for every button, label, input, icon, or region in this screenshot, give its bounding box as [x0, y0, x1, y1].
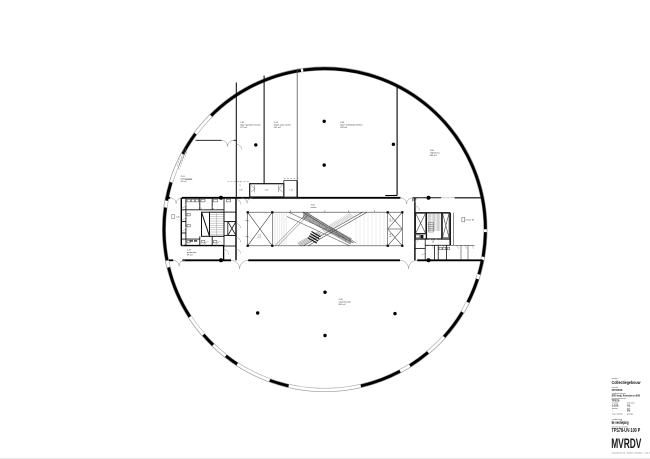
- svg-text:MVRDV: MVRDV: [611, 436, 642, 452]
- svg-text:131 m2: 131 m2: [274, 127, 282, 129]
- svg-text:1.50: 1.50: [265, 189, 269, 191]
- svg-text:TPS78-UV-100 P: TPS78-UV-100 P: [612, 428, 641, 434]
- svg-text:dunantstraat 10 - 3024 bc ro: dunantstraat 10 - 3024 bc rotterdam - t …: [612, 451, 650, 454]
- svg-text:gewijz.: gewijz.: [627, 414, 634, 416]
- svg-text:62 m2: 62 m2: [181, 181, 188, 183]
- svg-text:-: -: [612, 410, 613, 413]
- svg-text:1.49: 1.49: [239, 189, 243, 191]
- svg-text:297 m2: 297 m2: [240, 127, 248, 129]
- svg-text:ROTTERDAM: ROTTERDAM: [612, 388, 623, 392]
- svg-text:38 m2: 38 m2: [187, 254, 194, 256]
- svg-text:A1: A1: [627, 403, 631, 407]
- svg-text:1.51: 1.51: [289, 189, 293, 191]
- svg-text:v1.2: v1.2: [258, 237, 261, 239]
- svg-text:atrium: atrium: [311, 206, 317, 209]
- svg-text:554 m2: 554 m2: [340, 127, 348, 129]
- svg-text:1.46: 1.46: [176, 217, 180, 219]
- svg-text:406 m2: 406 m2: [430, 155, 438, 157]
- svg-text:entree lift: entree lift: [465, 219, 474, 222]
- svg-text:wijz. datum: wijz. datum: [612, 413, 623, 416]
- svg-text:datum: datum: [612, 407, 618, 410]
- svg-text:802 m2: 802 m2: [339, 304, 347, 306]
- svg-text:SV: SV: [627, 410, 631, 413]
- svg-text:5e verdieping: 5e verdieping: [612, 420, 629, 425]
- svg-text:1:100: 1:100: [612, 403, 619, 407]
- svg-text:v3.2: v3.2: [389, 236, 392, 238]
- svg-text:Collectiegebouw: Collectiegebouw: [612, 380, 641, 385]
- svg-text:v2.2: v2.2: [389, 221, 392, 223]
